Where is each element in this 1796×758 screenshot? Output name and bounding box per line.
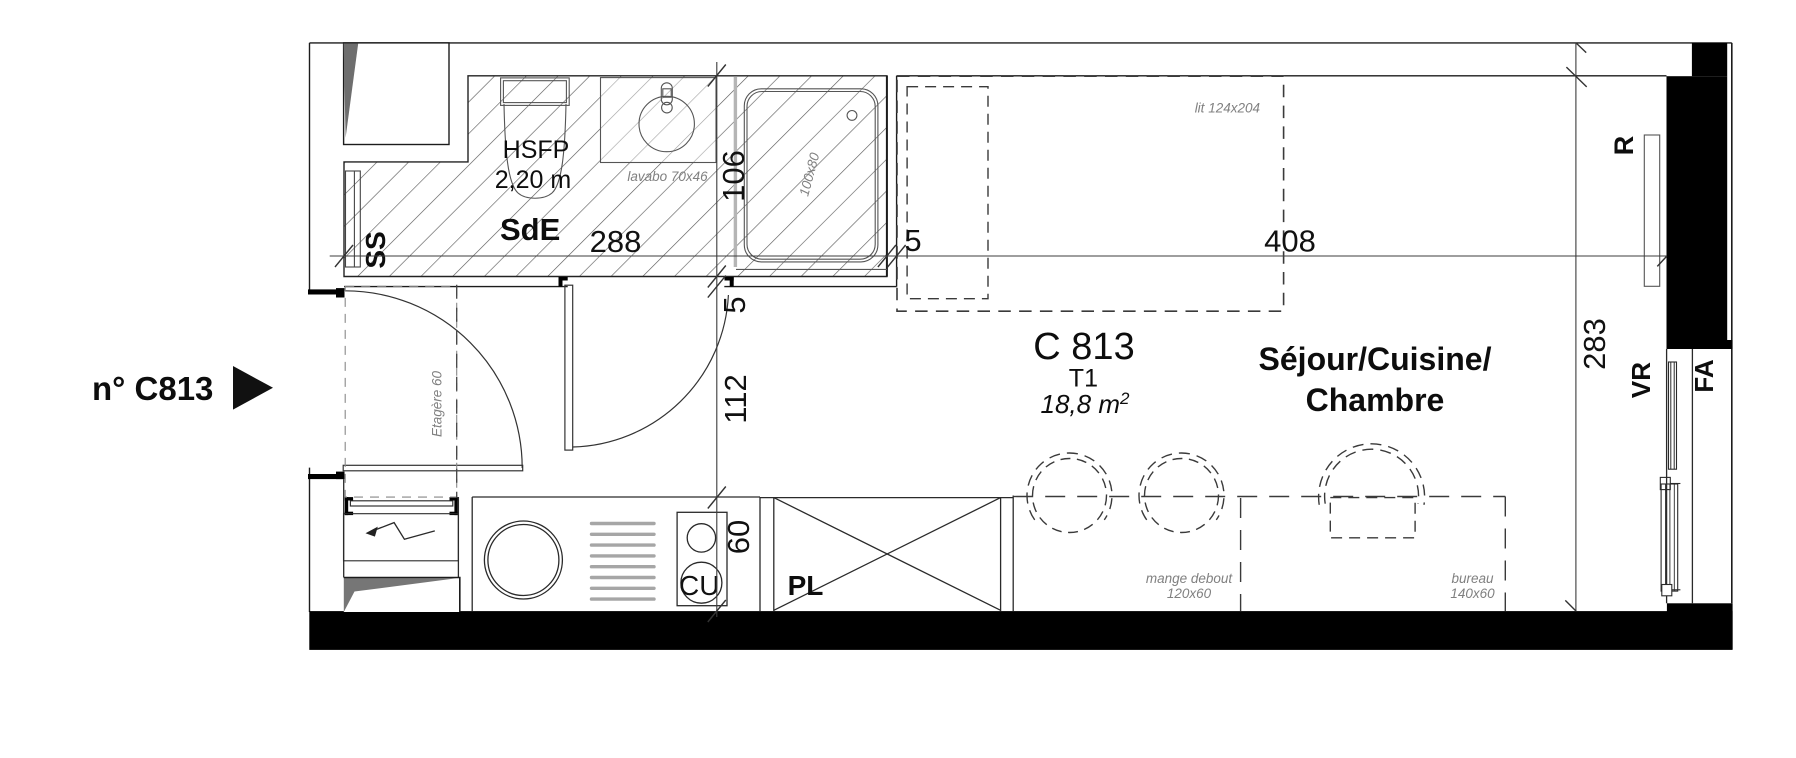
svg-text:lit 124x204: lit 124x204 (1195, 101, 1260, 116)
svg-text:18,8 m2: 18,8 m2 (1041, 389, 1131, 419)
svg-text:C 813: C 813 (1033, 326, 1134, 368)
svg-text:2,20 m: 2,20 m (495, 166, 571, 194)
svg-text:HSFP: HSFP (503, 136, 570, 164)
svg-text:SS: SS (360, 231, 391, 268)
svg-text:106: 106 (716, 150, 751, 202)
svg-text:Chambre: Chambre (1306, 382, 1445, 418)
svg-text:408: 408 (1264, 224, 1316, 259)
svg-text:112: 112 (718, 374, 753, 423)
svg-text:R: R (1609, 136, 1639, 156)
svg-text:lavabo 70x46: lavabo 70x46 (627, 169, 708, 184)
svg-text:mange debout: mange debout (1146, 571, 1234, 586)
svg-text:PL: PL (788, 570, 824, 601)
svg-text:140x60: 140x60 (1450, 586, 1495, 601)
svg-text:120x60: 120x60 (1167, 586, 1212, 601)
svg-text:CU: CU (679, 570, 719, 601)
svg-text:VR: VR (1626, 362, 1656, 398)
svg-text:5: 5 (904, 223, 921, 258)
svg-text:Etagère 60: Etagère 60 (430, 370, 445, 437)
svg-text:SdE: SdE (500, 212, 560, 247)
svg-text:5: 5 (717, 296, 752, 313)
svg-text:n° C813: n° C813 (92, 370, 213, 407)
svg-text:60: 60 (721, 520, 756, 554)
svg-text:FA: FA (1689, 359, 1719, 392)
svg-text:288: 288 (590, 224, 642, 259)
svg-text:bureau: bureau (1451, 571, 1494, 586)
svg-text:Séjour/Cuisine/: Séjour/Cuisine/ (1259, 341, 1492, 377)
svg-text:283: 283 (1577, 318, 1612, 370)
